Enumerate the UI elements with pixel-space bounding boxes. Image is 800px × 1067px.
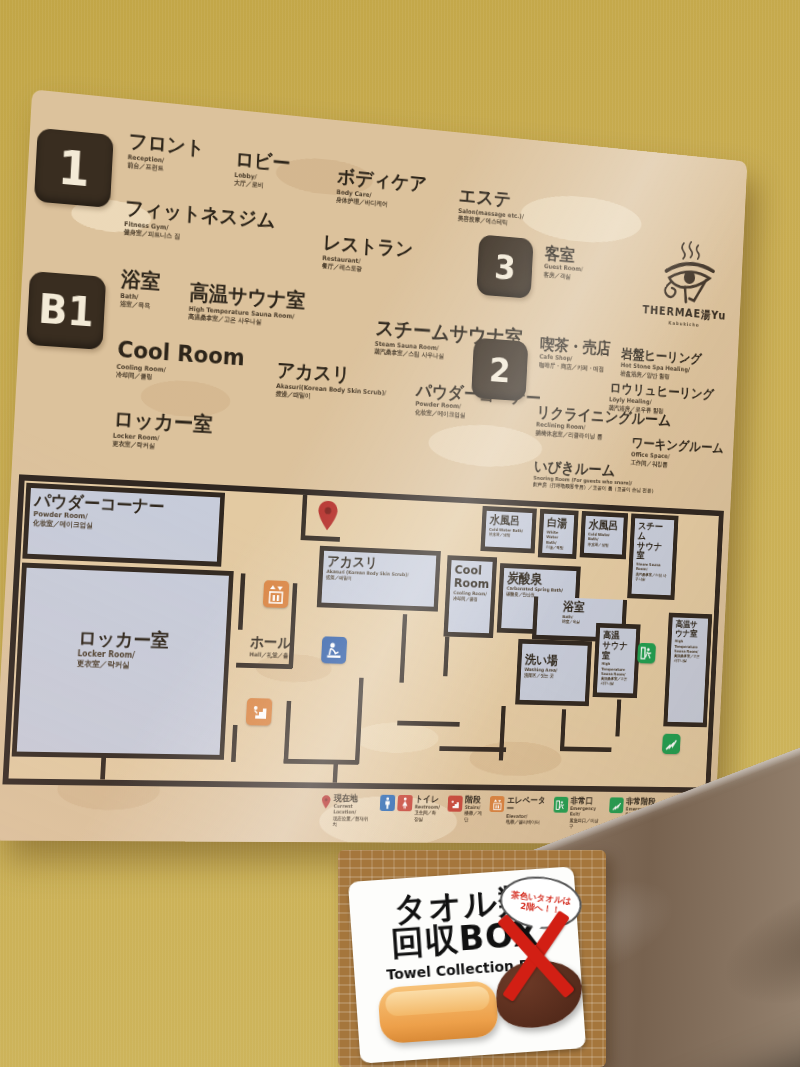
map-room-steam-sauna: スチーム サウナ室 Steam Sauna Room/ 蒸汽桑拿室／스팀 사우나… [627, 513, 678, 600]
thermae-yu-logo: THERMAE湯Yu Kabukicho [632, 235, 739, 349]
diagonal-stairs-icon [609, 797, 624, 813]
facility-front: フロント Reception/ 前台／프런트 [127, 131, 205, 177]
floor-2-tile: 2 [471, 338, 528, 402]
legend-current-location: 現在地Current Location/ 现在位置／현재위치 [320, 794, 373, 827]
map-room-white-bath: 白湯 White Water Bath/ 白汤／백탕 [538, 509, 579, 559]
map-wall [238, 573, 245, 629]
legend-emergency-exit: 非常口Emergency Exit/ 紧急出口／비상구 [552, 797, 602, 829]
facility-fitness-gym: フィットネスジム Fitness Gym/ 健身室／피트니스 짐 [123, 197, 276, 248]
map-room-high-temp-sauna-mid: 高温 サウナ室 High Temperature Sauna Room/ 高温桑… [593, 623, 641, 698]
tan-towel-illustration [377, 980, 499, 1044]
map-pin-icon [320, 794, 331, 810]
map-wall [439, 746, 506, 752]
running-man-exit-icon [553, 797, 568, 813]
facility-restaurant: レストラン Restaurant/ 餐厅／레스토랑 [322, 232, 414, 277]
map-room-akasuri: アカスリ Akasuri (Korean Body Skin Scrub)/ 搓… [317, 546, 441, 612]
floor-1-tile: 1 [34, 128, 114, 208]
map-wall [301, 535, 340, 542]
map-room-locker: ロッカー室 Locker Room/ 更衣室／락커실 [12, 563, 234, 760]
facility-cafe-shop: 喫茶・売店 Cafe Shop/ 咖啡厅・商店／카페・매점 [539, 335, 611, 374]
floor-guide-board: 1 フロント Reception/ 前台／프런트 ロビー Lobby/ 大厅／로… [0, 89, 747, 844]
map-wall [560, 746, 612, 752]
map-room-cold-bath-1: 水風呂 Cold Water Bath/ 冷水浴／냉탕 [480, 506, 536, 554]
restroom-male-icon [380, 795, 396, 811]
floor-b1-tile: B1 [26, 271, 106, 350]
map-wall [333, 762, 339, 783]
emergency-stairs-icon [662, 734, 681, 755]
facility-hot-stone-healing: 岩盤ヒーリング Hot Stone Spa Healing/ 岩盘浴房／암반 힐… [620, 347, 702, 383]
facility-akasuri: アカスリ Akasuri(Korean Body Skin Scrub)/ 搓澡… [276, 360, 388, 405]
legend-restroom: トイレRestroom/ 卫生间／화장실 [379, 795, 440, 822]
facility-high-temp-sauna: 高温サウナ室 High Temperature Sauna Room/ 高温桑拿… [188, 282, 306, 330]
map-wall [284, 759, 359, 765]
map-wall [355, 678, 364, 764]
map-room-high-temp-sauna-right: 高温サウナ室 High Temperature Sauna Room/ 高温桑拿… [663, 613, 712, 728]
map-wall [399, 614, 407, 683]
map-label-hall: ホール Hall／礼堂／홀 [249, 634, 291, 659]
map-wall [236, 663, 292, 669]
map-wall [231, 725, 237, 762]
map-wall [615, 699, 621, 736]
map-room-cold-bath-2: 水風呂 Cold Water Bath/ 冷水浴／냉탕 [580, 511, 628, 559]
map-wall [288, 583, 297, 668]
map-room-powder-corner: パウダーコーナー Powder Room/ 化妆室／메이크업실 [22, 483, 225, 567]
map-wall [301, 495, 308, 539]
map-wall [284, 701, 292, 763]
map-wall [499, 706, 506, 761]
map-room-washing-area: 洗い場 Washing Area/ 洗澡区／씻는 곳 [515, 639, 592, 706]
stairs-icon [246, 698, 273, 726]
body-scrub-icon [321, 636, 347, 664]
current-location-pin-icon [315, 499, 340, 533]
restroom-female-icon [397, 795, 413, 811]
elevator-icon [263, 580, 290, 608]
map-wall [397, 721, 460, 727]
facility-cool-room: Cool Room Cooling Room/ 冷却间／쿨링 [116, 337, 245, 387]
facility-esthe: エステ Salon(massage etc.)/ 美容按摩／에스테틱 [458, 185, 525, 228]
stairs-icon [447, 796, 462, 812]
b1-floor-map: パウダーコーナー Powder Room/ 化妆室／메이크업실 ロッカー室 Lo… [2, 474, 723, 793]
facility-locker-room: ロッカー室 Locker Room/ 更衣室／락커실 [112, 408, 213, 453]
facility-guest-room: 客室 Guest Room/ 客房／객실 [543, 244, 584, 282]
emergency-exit-icon [637, 643, 656, 664]
facility-bodycare: ボディケア Body Care/ 身体护理／바디케어 [336, 166, 428, 212]
floor-3-tile: 3 [476, 234, 533, 298]
map-wall [560, 709, 566, 750]
legend-stairs: 階段Stairs/ 楼梯／계단 [447, 796, 483, 823]
elevator-icon [489, 796, 504, 812]
map-wall [100, 758, 106, 780]
facility-lobby: ロビー Lobby/ 大厅／로비 [234, 149, 291, 192]
legend-elevator: エレベーターElevator/ 电梯／엘리베이터 [489, 796, 547, 825]
photo-scene: 1 フロント Reception/ 前台／프런트 ロビー Lobby/ 大厅／로… [0, 0, 800, 1067]
towel-collection-sign: タオル類 回収BOX Towel Collection Box 茶色いタオルは … [348, 866, 586, 1063]
eye-of-horus-icon [634, 235, 739, 309]
map-room-cool-room: Cool Room Cooling Room/ 冷却间／쿨링 [443, 555, 497, 638]
facility-bath: 浴室 Bath/ 浴室／목욕 [120, 268, 161, 311]
towel-collection-box: タオル類 回収BOX Towel Collection Box 茶色いタオルは … [338, 850, 606, 1067]
map-wall [443, 636, 449, 676]
